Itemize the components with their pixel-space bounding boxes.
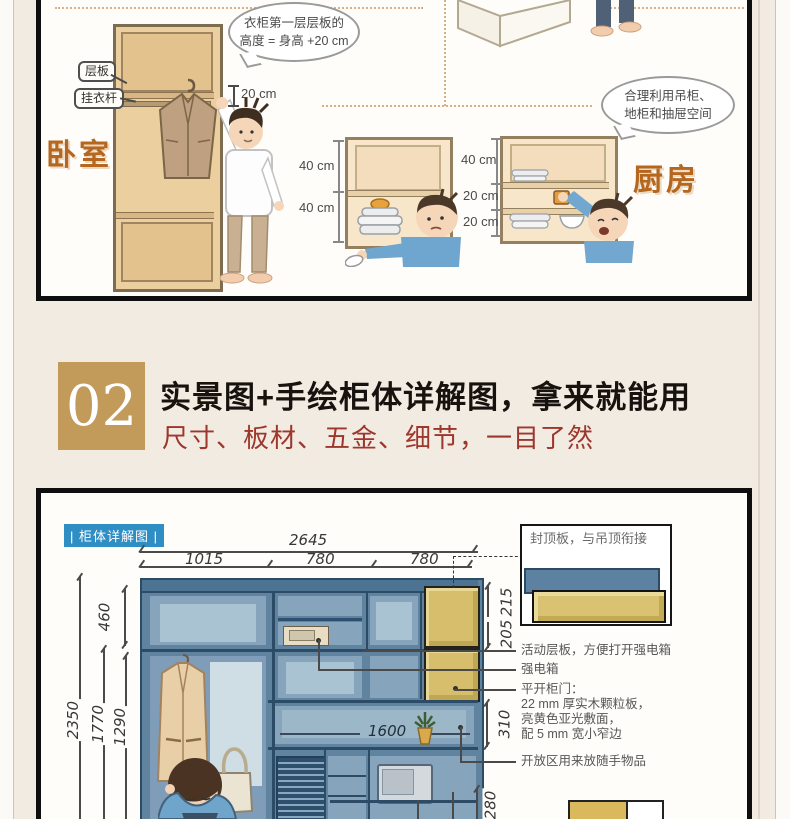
annotation-board-spec: 22 mm 厚实木颗粒板， — [521, 697, 650, 712]
bubble-text-line2: 高度 = 身高 +20 cm — [239, 32, 348, 50]
cab1-dim-tick — [333, 191, 344, 193]
cab1-dim-bottom: 40 cm — [299, 200, 334, 215]
annotation-electric-box: 强电箱 — [521, 662, 559, 677]
left-page-edge — [0, 0, 14, 819]
cactus-illustration — [413, 710, 437, 746]
dim-line — [140, 566, 472, 568]
callout-dashed-line — [453, 556, 523, 557]
cab2-dim-tick — [491, 235, 502, 237]
gap-dim-tick — [228, 105, 239, 107]
dotted-separator — [322, 105, 592, 107]
bottom-inset-yellow — [568, 800, 630, 819]
electric-box-display — [289, 630, 315, 641]
dim-2350: 2350 — [65, 699, 81, 741]
diagram-tag: | 柜体详解图 | — [64, 524, 164, 547]
cab1-dim-top: 40 cm — [299, 158, 334, 173]
shelf-tag: 层板 — [78, 61, 116, 82]
cab2-dim-mid: 20 cm — [463, 188, 498, 203]
cabinet-frame-line — [268, 700, 478, 703]
sad-kid-illustration — [345, 185, 463, 267]
leader-line — [452, 792, 454, 819]
dotted-separator — [444, 0, 446, 106]
right-edge-shade-line — [758, 0, 760, 819]
rod-tag: 挂衣杆 — [74, 88, 124, 109]
cabinet-shelf-line — [328, 775, 366, 777]
bending-person-illustration — [158, 733, 270, 819]
gap-dim-label: 20 cm — [241, 86, 276, 101]
dotted-separator — [55, 7, 423, 9]
dim-total-width: 2645 — [289, 533, 327, 548]
dim-line-280 — [476, 789, 478, 819]
cabinet-cubby — [278, 596, 362, 616]
bubble-text-line1: 衣柜第一层层板的 — [244, 14, 344, 32]
small-shelf-column — [328, 756, 366, 819]
happy-kid-illustration — [540, 183, 648, 263]
gap-dim-tick — [228, 85, 239, 87]
dim-line-310 — [486, 703, 488, 747]
cabinet-shelf-line — [328, 795, 366, 797]
microwave-window — [382, 769, 414, 795]
callout-detail-door-panel — [532, 590, 666, 623]
dim-460: 460 — [96, 601, 112, 634]
gap-dim-line — [233, 85, 235, 106]
cutoff-cabinet-illustration — [450, 0, 575, 52]
man-illustration — [198, 92, 293, 292]
callout-dashed-line — [453, 556, 454, 588]
bottom-inset-white — [626, 800, 664, 819]
dim-280: 280 — [482, 789, 498, 819]
dim-310: 310 — [496, 708, 512, 741]
cab2-dim-bottom: 20 cm — [463, 214, 498, 229]
section-number-badge: 02 — [58, 362, 145, 450]
annotation-edge-spec: 配 5 mm 宽小窄边 — [521, 727, 622, 742]
leader-line — [417, 800, 419, 819]
annotation-open-area: 开放区用来放随手物品 — [521, 754, 646, 769]
cabinet-cubby-back — [160, 604, 256, 642]
louver-panel — [276, 756, 326, 819]
leader-line — [318, 669, 516, 671]
cabinet-frame-line — [324, 750, 326, 819]
section-title: 实景图+手绘柜体详解图，拿来就能用 — [160, 372, 691, 417]
dim-line-460 — [124, 589, 126, 646]
right-page-edge — [775, 0, 790, 819]
kitchen-label: 厨房 — [633, 155, 699, 199]
diagram-tag-text: | 柜体详解图 | — [70, 526, 158, 545]
cab2-dim-tick — [491, 209, 502, 211]
cab2-dim-tick — [491, 183, 502, 185]
dim-215: 215 — [498, 586, 514, 619]
cabinet-shelf-line — [278, 618, 362, 621]
dim-1290: 1290 — [112, 706, 128, 748]
cabinet-frame-line — [268, 747, 478, 750]
dim-col2: 780 — [306, 552, 335, 567]
cabinet-frame-line — [420, 591, 422, 699]
cabinet-cubby — [370, 656, 418, 698]
section-number: 02 — [66, 374, 137, 439]
bedroom-label: 卧室 — [46, 130, 112, 174]
section-subtitle: 尺寸、板材、五金、细节，一目了然 — [162, 418, 594, 455]
cabinet-frame-line — [272, 591, 275, 819]
annotation-finish-spec: 亮黄色亚光敷面， — [521, 712, 621, 727]
bubble-text-line2: 地柜和抽屉空间 — [624, 105, 712, 123]
leader-line — [460, 727, 462, 761]
cab2-dim-tick — [491, 138, 502, 140]
shelf-dim-line — [280, 733, 360, 735]
leader-line — [318, 640, 320, 669]
annotation-swing-door: 平开柜门： — [521, 682, 584, 697]
top-callout-text: 封顶板，与吊顶衔接 — [530, 531, 647, 546]
cab2-dim-top: 40 cm — [461, 152, 496, 167]
cabinet-frame-line — [330, 800, 478, 803]
leader-line — [455, 689, 516, 691]
cab1-dim-tick — [333, 140, 344, 142]
leader-line — [363, 650, 516, 652]
dim-1770: 1770 — [90, 703, 106, 745]
leader-line — [460, 761, 516, 763]
annotation-movable-shelf: 活动层板，方便打开强电箱 — [521, 643, 671, 658]
yellow-door-upper — [424, 586, 480, 648]
yellow-door-lower — [424, 648, 480, 702]
cabinet-frame-line — [368, 750, 370, 819]
dim-line-215 — [487, 586, 489, 617]
cabinet-cubby-back — [286, 662, 354, 694]
bubble-text-line1: 合理利用吊柜、 — [624, 87, 712, 105]
dim-col3: 780 — [410, 552, 439, 567]
dim-col1: 1015 — [185, 552, 223, 567]
cab1-dim-tick — [333, 241, 344, 243]
shelf-tag-text: 层板 — [85, 64, 109, 78]
dim-205: 205 — [498, 618, 514, 651]
product-detail-page: 层板 挂衣杆 卧室 衣柜第一层层板的 高度 = 身高 +20 cm 20 cm … — [0, 0, 790, 819]
shelf-dim-label: 1600 — [368, 724, 406, 739]
cabinet-cubby-back — [376, 602, 412, 640]
standing-person-legs-illustration — [588, 0, 646, 42]
rod-tag-text: 挂衣杆 — [81, 91, 117, 105]
cabinet-frame-line — [366, 591, 368, 649]
